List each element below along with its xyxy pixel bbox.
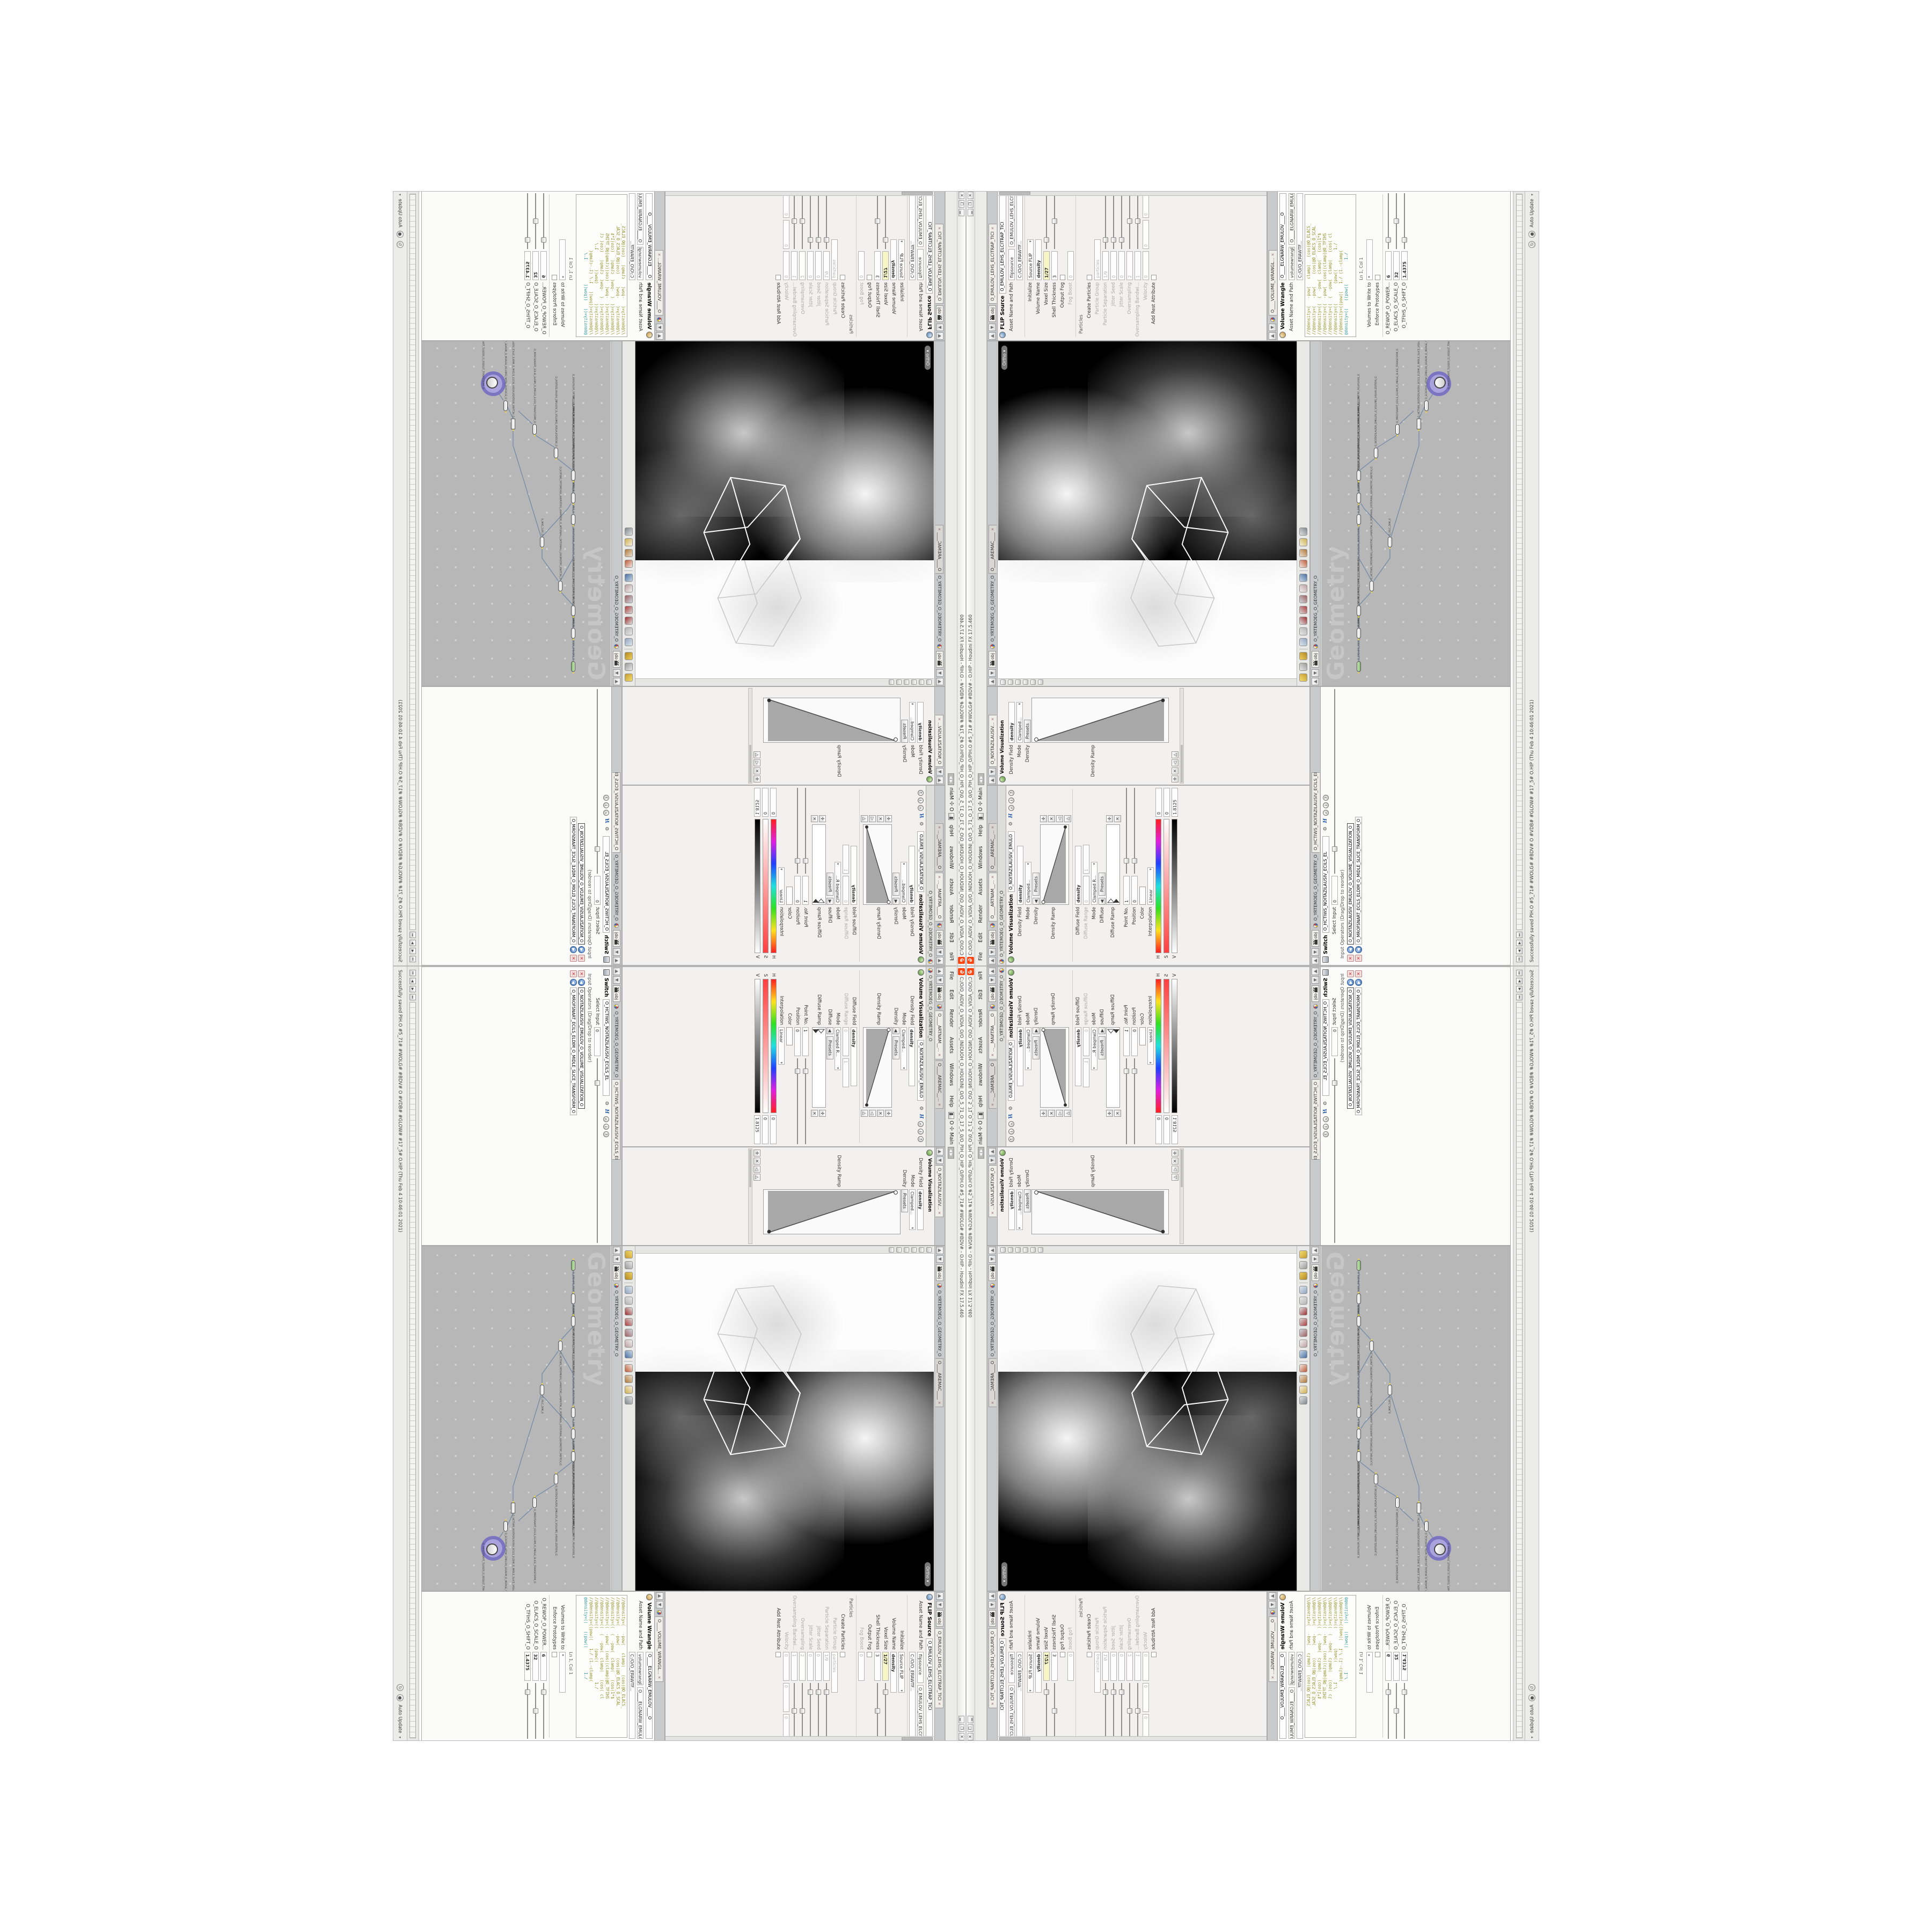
add-rest-checkbox[interactable] (1151, 275, 1157, 280)
network-node[interactable]: O_PILC_DIM_O (1388, 1385, 1392, 1414)
network-node[interactable]: O____ELGNARW_EMULOV____O____VOLUME_WRANG… (571, 396, 575, 481)
snap-cut-icon[interactable] (625, 1340, 633, 1348)
menu-edit[interactable]: Edit (948, 928, 954, 947)
ramp-flip-icon[interactable]: △ (753, 1174, 760, 1181)
diffuse-range-min[interactable]: 0 (1083, 1027, 1089, 1056)
menu-help[interactable]: Help (948, 1091, 954, 1112)
ramp-delete-point-icon[interactable]: ✕ (877, 1110, 884, 1117)
mode-dropdown[interactable]: Clamped... (901, 1027, 908, 1070)
shell-thickness-input[interactable]: 3 (1051, 251, 1058, 280)
camera-selector-pill[interactable]: Ortho ▾ (925, 346, 931, 370)
rotate-tool-icon[interactable] (1015, 680, 1021, 685)
diffuse-ramp-editor[interactable] (812, 824, 826, 905)
play-reverse-icon[interactable]: ◀ (410, 948, 416, 954)
reorder-input-icon[interactable]: ◀ (578, 979, 585, 986)
tab-volviz2[interactable]: O_NOITAZILAUSIV...✕ (936, 715, 944, 767)
tab-close-icon[interactable]: ✕ (938, 1401, 942, 1404)
asset-name-field[interactable]: flipsource (918, 249, 924, 280)
fog-boost-input[interactable]: 0 (859, 1652, 865, 1681)
network-node[interactable]: O_HCTIWS_NOITAZILAUSIV_ECILS_ELDIM_O_MID… (1417, 341, 1421, 429)
pane-down-icon[interactable]: ▼ (1312, 948, 1319, 956)
ramp-delete-point-icon[interactable]: ✕ (1114, 815, 1121, 822)
pane-down-icon[interactable]: ▼ (936, 768, 943, 775)
maximize-button[interactable]: ❐ (968, 200, 974, 208)
velocity-input[interactable]: 0 (1143, 1652, 1149, 1681)
camera-selector-pill[interactable]: Ortho ▾ (1001, 346, 1007, 370)
network-node[interactable]: O_NOITAZILAUSIV_EMULOV_O_VOLUME_VISUALIZ… (1374, 376, 1378, 458)
mode-dropdown[interactable]: Clamped... (910, 1189, 916, 1230)
switch-input-1[interactable]: O_MROFSNART_ECILS_ELDIM_O_MIDLE_SLICE_TR… (1355, 987, 1362, 1115)
tab-close-icon[interactable]: ✕ (938, 1103, 942, 1107)
viewport-canvas[interactable]: Ortho ▾ (635, 341, 934, 678)
diffuse-range-min[interactable]: 0 (843, 876, 850, 905)
ramp-collapse-icon[interactable]: ◀ (826, 1027, 833, 1034)
main-pane-label[interactable]: Main (948, 1132, 954, 1145)
menu-assets[interactable]: Assets (978, 874, 984, 900)
network-node[interactable]: O_PILC_DIM_O (1388, 518, 1392, 547)
network-breadcrumb[interactable]: O_YRTEMOEG_O_GEOMETRY_O (1313, 575, 1318, 641)
diffuse-mode-dropdown[interactable]: Clamped R... (835, 862, 841, 905)
density-ramp-editor[interactable] (1040, 824, 1069, 905)
point-no-input[interactable]: 1 (803, 1027, 809, 1056)
render-view-icon[interactable] (1299, 1396, 1307, 1404)
jitter-seed-slider[interactable] (818, 1683, 819, 1739)
jitter-scale-input[interactable]: 0 (1118, 1652, 1125, 1681)
flip-vertical-scrollbar[interactable] (665, 1736, 934, 1741)
particle-separation-input[interactable]: 1/9 (824, 1652, 830, 1681)
pane-up-icon[interactable]: ▲ (656, 332, 663, 340)
gear-icon[interactable]: ⚙ (918, 821, 924, 827)
help-icon[interactable]: ? (1008, 1136, 1014, 1142)
pane-down-icon[interactable]: ▼ (613, 976, 620, 984)
pane-down-icon[interactable]: ▼ (1269, 324, 1276, 331)
asset-node-field[interactable]: O_EMULOV_LEHS_ELCITRAP_TICI (918, 1685, 924, 1739)
select-input-value[interactable]: 0 (1331, 1027, 1338, 1056)
tab-switch[interactable]: O_HCTIWS_NOITAZILAUSIV_ECILS_ELDIM_O_MID… (1312, 772, 1320, 853)
mode-dropdown[interactable]: Clamped... (1016, 702, 1023, 743)
select-tool-icon[interactable] (926, 680, 932, 685)
select-tool-icon[interactable] (1000, 680, 1006, 685)
scale-param-slider[interactable] (536, 1683, 537, 1739)
shift-param-input[interactable]: 1.4375 (1401, 251, 1408, 280)
pane-up-icon[interactable]: ▲ (936, 968, 943, 975)
menu-render[interactable]: Render (948, 900, 954, 928)
pane-down-icon[interactable]: ▼ (656, 1601, 663, 1608)
gear-icon[interactable]: ⚙ (1322, 1100, 1329, 1107)
interpolation-dropdown[interactable]: Linear (1147, 1027, 1154, 1065)
velocity-input-y[interactable]: 0 (1143, 1683, 1149, 1712)
tab-flip-source[interactable]: O_EMULOV_LEHS_ELCITRAP_TICI✕ (989, 224, 997, 303)
pane-up-icon[interactable]: ▲ (613, 968, 620, 975)
shade-mode-icon[interactable] (1299, 663, 1307, 671)
show-handles-icon[interactable] (625, 1250, 633, 1258)
saturation-value[interactable]: 0 (763, 788, 769, 817)
pane-up-icon[interactable]: ▲ (989, 1247, 996, 1254)
scale-param-input[interactable]: 32 (1393, 1652, 1400, 1681)
handles-tool-icon[interactable] (1030, 1247, 1036, 1253)
viewport-breadcrumb[interactable]: O_YRTEMOEG_O_GEOMETRY_O (938, 1290, 942, 1356)
shift-param-slider[interactable] (528, 1683, 529, 1739)
hue-value[interactable]: 0 (771, 788, 777, 817)
rotate-handle-icon[interactable] (625, 1318, 633, 1326)
pane-scroll-chip[interactable]: ◀ ▶ (948, 1147, 955, 1159)
pane-up-icon[interactable]: ▲ (613, 957, 620, 964)
pane-down-icon[interactable]: ▼ (613, 669, 620, 677)
search-icon[interactable]: ⌕ (1323, 1116, 1329, 1122)
cook-interrupt-icon[interactable]: ● (397, 231, 404, 238)
switch-node-name-field[interactable]: O_HCTIWS_NOITAZILAUSIV_ECILS_EL (603, 999, 610, 1096)
ramp-prev-icon[interactable]: ◁ (753, 1166, 760, 1173)
velocity-input-y[interactable]: 0 (784, 220, 790, 249)
voxel-size-input[interactable]: 1/27 (1043, 1652, 1050, 1681)
shift-param-input[interactable]: 1.4375 (525, 1652, 531, 1681)
diffuse-field-input[interactable]: density (1075, 846, 1081, 905)
play-reverse-icon[interactable]: ◀ (1516, 978, 1523, 984)
viewport-breadcrumb[interactable]: O_YRTEMOEG_O_GEOMETRY_O (990, 575, 995, 641)
velocity-input-y[interactable]: 0 (784, 1683, 790, 1712)
cook-refresh-icon[interactable]: ↻ (397, 1684, 404, 1691)
flip-node-name-field[interactable]: O_EMULOV_LEHS_ELCITRAP_TICI (926, 193, 933, 294)
ramp-prev-icon[interactable]: ◁ (869, 1110, 876, 1117)
ramp-add-point-icon[interactable]: ✛ (885, 1110, 892, 1117)
diffuse-range-max[interactable]: 1 (1083, 845, 1089, 874)
transform-handle-icon[interactable] (625, 1307, 633, 1315)
jitter-scale-slider[interactable] (1121, 1683, 1122, 1739)
enforce-prototypes-checkbox[interactable] (552, 1652, 558, 1657)
search-icon[interactable]: ⌕ (604, 1116, 610, 1122)
gear-icon[interactable]: ⚙ (1008, 1105, 1014, 1111)
point-no-slider[interactable] (1126, 788, 1127, 874)
oversampling-bandwidth-slider[interactable] (1137, 193, 1138, 249)
menu-file[interactable]: File (948, 967, 954, 985)
asset-path-field[interactable]: C:/O/O_ERAWTF... (1297, 193, 1303, 280)
oversampling-input[interactable]: 2 (800, 1652, 806, 1681)
reorder-input-icon[interactable]: ◀ (570, 979, 577, 986)
multiview-icon[interactable] (625, 1350, 633, 1358)
obj-context-chip[interactable]: obj (1312, 930, 1319, 947)
tab-close-icon[interactable]: ✕ (938, 226, 942, 230)
obj-context-chip[interactable]: obj (613, 1264, 620, 1281)
ramp-add-point-icon[interactable]: ✛ (753, 775, 760, 782)
network-node[interactable]: O_ECAFRUS_HTIW_EMULOV_EGREM_O_MERGE_VOLU… (503, 1521, 508, 1591)
scale-param-input[interactable]: 32 (533, 1652, 539, 1681)
output-fog-checkbox[interactable] (867, 275, 873, 280)
network-node[interactable]: O____ELGNARW_EMULOV____O____VOLUME_WRANG… (1357, 1451, 1361, 1536)
tab-close-icon[interactable]: ✕ (938, 1211, 942, 1214)
search-icon[interactable]: ⌕ (918, 1121, 924, 1127)
render-view-icon[interactable] (625, 528, 633, 536)
create-particles-checkbox[interactable] (840, 1652, 846, 1657)
asset-name-field[interactable]: volumewrangle (638, 1652, 644, 1685)
obj-context-chip[interactable]: obj (989, 1264, 996, 1281)
tab-camera-view[interactable]: O____AREMAC____✕ (936, 525, 944, 574)
tab-close-icon[interactable]: ✕ (938, 875, 942, 879)
diffuse-range-max[interactable]: 1 (1083, 1058, 1089, 1087)
network-node[interactable]: O_HCTIWS_YRTEMOEG_LANRETXE_LANRETNI_O_IN… (1370, 466, 1374, 591)
shift-param-slider[interactable] (528, 193, 529, 249)
jitter-scale-input[interactable]: 0 (808, 1652, 814, 1681)
voxel-size-slider[interactable] (885, 1683, 887, 1739)
maximize-button[interactable]: ❐ (958, 200, 964, 208)
create-particles-checkbox[interactable] (840, 275, 846, 280)
tab-close-icon[interactable]: ✕ (657, 1676, 662, 1679)
main-pane-label[interactable]: Main (978, 787, 984, 800)
switch-breadcrumb[interactable]: O_YRTEMOEG_O_GEOMETRY_O (1313, 854, 1318, 920)
menu-render[interactable]: Render (978, 1004, 984, 1032)
search-icon[interactable]: ⌕ (604, 810, 610, 816)
density-field-input[interactable]: density (1008, 1189, 1015, 1230)
obj-context-chip[interactable]: obj (1312, 651, 1319, 668)
play-icon[interactable]: ▶ (410, 986, 416, 992)
title-bar[interactable]: C:/O/O_AIDIV_O_VIDIA_O/O_INIDUOH_O_HOUDI… (957, 967, 965, 1741)
search-icon[interactable]: ⌕ (918, 805, 924, 811)
wrangle-node-name-field[interactable]: O____ELGNARW_EMULOV____O (1279, 1652, 1286, 1739)
menu-help[interactable]: Help (978, 820, 984, 841)
output-fog-checkbox[interactable] (1060, 275, 1065, 280)
handles-tool-icon[interactable] (1030, 680, 1036, 685)
ramp-flip-icon[interactable]: △ (1172, 751, 1179, 758)
position-input[interactable]: 0 (795, 1027, 801, 1056)
hook-icon[interactable] (625, 549, 633, 557)
desktop-gear-icon[interactable]: ✣ (948, 801, 954, 806)
flip-node-name-field[interactable]: O_EMULOV_LEHS_ELCITRAP_TICI (999, 1638, 1006, 1739)
network-node[interactable]: O_NOITAZILAUSIV_EMULOV_O_VOLUME_VISUALIZ… (1374, 1474, 1378, 1556)
asset-node-field[interactable]: O____ELGNARW_EMULOV____O (638, 1687, 644, 1739)
obj-context-chip[interactable]: obj (613, 930, 620, 947)
asset-name-field[interactable]: flipsource (918, 1652, 924, 1683)
render-view-icon[interactable] (1299, 528, 1307, 536)
density-field-input[interactable]: density (1017, 1027, 1023, 1086)
network-node[interactable]: JBO.MD3-PETS_TREPILS_O_3DNIRG_O (571, 1316, 575, 1373)
wrangle-node-name-field[interactable]: O____ELGNARW_EMULOV____O (646, 1652, 653, 1739)
tab-camera[interactable]: O____AREMAC__...✕ (989, 1060, 997, 1109)
oversampling-bandwidth-input[interactable]: 1 (1135, 251, 1141, 280)
menu-file[interactable]: File (948, 947, 954, 965)
scale-tool-icon[interactable] (1023, 1247, 1028, 1253)
particle-separation-input[interactable]: 1/9 (1102, 251, 1109, 280)
pane-up-icon[interactable]: ▲ (1312, 678, 1319, 685)
rotate-handle-icon[interactable] (625, 606, 633, 614)
density-field-input[interactable]: density (918, 1189, 924, 1230)
select-input-value[interactable]: 0 (595, 876, 601, 905)
network-node[interactable]: JBO.MD3-PETS_TREPILS_O_3DNIRG_O (571, 559, 575, 616)
view-pivot-icon[interactable] (625, 1286, 633, 1294)
power-param-slider[interactable] (544, 1683, 545, 1739)
add-rest-checkbox[interactable] (776, 275, 781, 280)
oversampling-slider[interactable] (802, 193, 803, 249)
mode-dropdown[interactable]: Clamped... (1016, 1189, 1023, 1230)
point-no-input[interactable]: 1 (1123, 876, 1130, 905)
select-input-slider[interactable] (597, 689, 598, 874)
diffuse-range-min[interactable]: 0 (843, 1027, 850, 1056)
jump-end-icon[interactable]: ⏭ (1516, 994, 1523, 1000)
oversampling-bandwidth-slider[interactable] (794, 1683, 795, 1739)
switch-input-1[interactable]: O_MROFSNART_ECILS_ELDIM_O_MIDLE_SLICE_TR… (1355, 817, 1362, 945)
network-node[interactable]: O_MROFSNART_ECILS_ELDIM_O_MIDLE_SLICE_TR… (1395, 349, 1400, 435)
viewport-canvas[interactable]: Ortho ▾ (998, 341, 1297, 678)
remove-input-icon[interactable]: ✕ (570, 955, 577, 962)
cook-refresh-icon[interactable]: ↻ (1528, 1684, 1535, 1691)
jitter-seed-slider[interactable] (818, 193, 819, 249)
value-strip[interactable] (1172, 819, 1177, 953)
shell-thickness-slider[interactable] (877, 1683, 879, 1739)
shade-mode-icon[interactable] (1299, 1261, 1307, 1269)
scale-tool-icon[interactable] (904, 1247, 909, 1253)
wrangle-node-name-field[interactable]: O____ELGNARW_EMULOV____O (646, 193, 653, 280)
scale-param-slider[interactable] (536, 193, 537, 249)
oversampling-slider[interactable] (1129, 193, 1130, 249)
tab-close-icon[interactable]: ✕ (938, 718, 942, 721)
scale-param-input[interactable]: 32 (1393, 251, 1400, 280)
diffuse-ramp-editor[interactable] (1106, 824, 1120, 905)
volume-name-input[interactable]: density (1035, 1652, 1042, 1693)
tab-close-icon[interactable]: ✕ (991, 1702, 995, 1706)
vex-code-editor[interactable]: //@density=( -pow( clamp( (cos(@O_ELACS_… (576, 194, 627, 337)
density-ramp-editor[interactable] (1031, 1189, 1169, 1234)
gear-icon[interactable]: ⚙ (603, 1100, 610, 1107)
initialize-dropdown[interactable]: Source FLIP (1027, 239, 1034, 280)
minimize-button[interactable]: ▁ (968, 209, 974, 216)
scale-param-input[interactable]: 32 (533, 251, 539, 280)
initialize-dropdown[interactable]: Source FLIP (899, 239, 905, 280)
voxel-size-input[interactable]: 1/27 (883, 1652, 889, 1681)
obj-context-chip[interactable]: obj (936, 985, 943, 1002)
reorder-input-icon[interactable]: ◀ (1355, 946, 1362, 953)
transform-handle-icon[interactable] (625, 617, 633, 625)
interpolation-dropdown[interactable]: Linear (779, 1027, 785, 1065)
switch-breadcrumb[interactable]: O_YRTEMOEG_O_GEOMETRY_O (614, 1011, 619, 1077)
show-handles-icon[interactable] (1299, 1250, 1307, 1258)
close-button[interactable]: ✕ (968, 1733, 974, 1740)
ramp-prev-icon[interactable]: ◁ (753, 759, 760, 766)
diffuse-presets-button[interactable]: Presets (1099, 873, 1106, 896)
pane-down-icon[interactable]: ▼ (936, 1255, 943, 1263)
pane-up-icon[interactable]: ▲ (656, 1592, 663, 1600)
menu-edit[interactable]: Edit (948, 985, 954, 1004)
desktop-layout-icon[interactable] (978, 1112, 984, 1119)
voxel-size-slider[interactable] (1046, 1683, 1047, 1739)
tab-mantra[interactable]: O____ARTNAM__...✕ (989, 1011, 997, 1059)
volviz-node-name-field[interactable]: O_NOITAZILAUSIV_EMULO (1008, 831, 1015, 892)
menu-file[interactable]: File (978, 967, 984, 985)
tab-flip-source[interactable]: O_EMULOV_LEHS_ELCITRAP_TICI✕ (989, 1628, 997, 1708)
particle-separation-slider[interactable] (1105, 1683, 1106, 1739)
select-input-slider[interactable] (597, 1058, 598, 1243)
gear-icon[interactable]: ⚙ (1008, 821, 1014, 827)
tab-close-icon[interactable]: ✕ (991, 1401, 995, 1404)
info-icon[interactable]: i (1323, 802, 1329, 808)
hue-strip[interactable] (1155, 819, 1161, 953)
menu-windows[interactable]: Windows (978, 1058, 984, 1091)
network-node[interactable]: O_ECAFRUS_HTIW_EMULOV_EGREM_O_MERGE_VOLU… (503, 341, 508, 411)
tab-volume-wrangle[interactable]: O____VOLUME_WRANGL...✕ (1269, 250, 1277, 316)
info-icon[interactable]: i (1008, 1129, 1014, 1135)
tab-close-icon[interactable]: ✕ (1271, 253, 1275, 256)
velocity-input[interactable]: 0 (1143, 251, 1149, 280)
point-no-slider[interactable] (806, 788, 807, 874)
position-slider[interactable] (1134, 788, 1135, 874)
network-node[interactable]: O_HCTIWS_NOITAZILAUSIV_ECILS_ELDIM_O_MID… (1417, 1503, 1421, 1591)
shell-thickness-input[interactable]: 3 (1051, 1652, 1058, 1681)
pane-up-icon[interactable]: ▲ (989, 957, 996, 964)
cook-interrupt-icon[interactable]: ● (397, 1694, 404, 1701)
initialize-dropdown[interactable]: Source FLIP (1027, 1652, 1034, 1693)
breadcrumb[interactable]: O_YRTEMOEG_O_GEOMETRY_O (999, 975, 1004, 1041)
mode-dropdown[interactable]: Clamped... (910, 702, 916, 743)
diffuse-range-max[interactable]: 1 (843, 845, 850, 874)
menu-edit[interactable]: Edit (978, 985, 984, 1004)
initialize-dropdown[interactable]: Source FLIP (899, 1652, 905, 1693)
tab-close-icon[interactable]: ✕ (991, 226, 995, 230)
network-node[interactable]: O_ECAFRUS_HTIW_EMULOV_EGREM_O_MERGE_VOLU… (1424, 1521, 1429, 1591)
tab-volume-wrangle[interactable]: O____VOLUME_WRANGL...✕ (656, 1616, 664, 1682)
ramp-collapse-icon[interactable]: ◀ (892, 1027, 899, 1034)
jump-end-icon[interactable]: ⏭ (410, 932, 416, 938)
select-input-value[interactable]: 0 (1331, 876, 1338, 905)
menu-assets[interactable]: Assets (948, 1032, 954, 1058)
ramp-collapse-icon[interactable]: ◀ (1033, 898, 1040, 905)
tab-close-icon[interactable]: ✕ (991, 1103, 995, 1107)
pane-down-icon[interactable]: ▼ (1269, 1601, 1276, 1608)
breadcrumb[interactable]: O_YRTEMOEG_O_GEOMETRY_O (928, 975, 933, 1041)
view-pivot-icon[interactable] (1299, 1286, 1307, 1294)
pane-up-icon[interactable]: ▲ (936, 332, 943, 340)
asset-path-field[interactable]: C:/O/O_ERAWTF... (910, 1652, 916, 1739)
magnet-snap-icon[interactable] (1299, 1364, 1307, 1372)
horizontal-scrollbar[interactable] (1180, 1148, 1184, 1244)
shell-thickness-input[interactable]: 3 (875, 251, 881, 280)
ramp-add-point-icon[interactable]: ✛ (1040, 1110, 1047, 1117)
tab-close-icon[interactable]: ✕ (991, 1053, 995, 1057)
pane-up-icon[interactable]: ▲ (989, 1148, 996, 1155)
tab-close-icon[interactable]: ✕ (991, 1211, 995, 1214)
ramp-delete-point-icon[interactable]: ✕ (811, 815, 818, 822)
network-breadcrumb[interactable]: O_YRTEMOEG_O_GEOMETRY_O (614, 575, 619, 641)
jitter-seed-slider[interactable] (1113, 1683, 1114, 1739)
transform-handle-icon[interactable] (1299, 617, 1307, 625)
vex-code-editor[interactable]: //@density=( -pow( clamp( (cos(@O_ELACS_… (1305, 194, 1356, 337)
particle-group-input[interactable]: particles (832, 239, 838, 280)
color-swatch[interactable] (1139, 1027, 1146, 1045)
particle-separation-input[interactable]: 1/9 (824, 251, 830, 280)
switch-breadcrumb[interactable]: O_YRTEMOEG_O_GEOMETRY_O (614, 854, 619, 920)
reorder-input-icon[interactable]: ◀ (1347, 946, 1354, 953)
tab-close-icon[interactable]: ✕ (991, 718, 995, 721)
pane-up-icon[interactable]: ▲ (936, 678, 943, 685)
pane-up-icon[interactable]: ▲ (989, 968, 996, 975)
voxel-size-input[interactable]: 1/27 (883, 251, 889, 280)
camera-lock-icon[interactable] (1299, 1297, 1307, 1305)
pane-down-icon[interactable]: ▼ (989, 1601, 996, 1608)
multiview-icon[interactable] (625, 574, 633, 582)
snap-cut-icon[interactable] (1299, 1340, 1307, 1348)
tab-close-icon[interactable]: ✕ (657, 253, 662, 256)
pane-down-icon[interactable]: ▼ (989, 324, 996, 331)
cook-mode-selector[interactable]: Auto Update (1529, 1704, 1535, 1733)
particle-separation-slider[interactable] (826, 1683, 828, 1739)
desktop-gear-icon[interactable]: ✣ (978, 801, 984, 806)
pane-down-icon[interactable]: ▼ (936, 1157, 943, 1164)
jump-start-icon[interactable]: ⏮ (1516, 956, 1523, 962)
switch-node-name-field[interactable]: O_HCTIWS_NOITAZILAUSIV_ECILS_EL (1322, 836, 1329, 933)
diffuse-field-input[interactable]: density (851, 846, 858, 905)
density-field-input[interactable]: density (1008, 702, 1015, 743)
timeline-ruler[interactable] (410, 1002, 416, 1738)
desktop-gear-icon[interactable]: ✣ (948, 1126, 954, 1131)
play-icon[interactable]: ▶ (410, 940, 416, 946)
obj-context-chip[interactable]: obj (1312, 985, 1319, 1002)
shift-param-input[interactable]: 1.4375 (525, 251, 531, 280)
